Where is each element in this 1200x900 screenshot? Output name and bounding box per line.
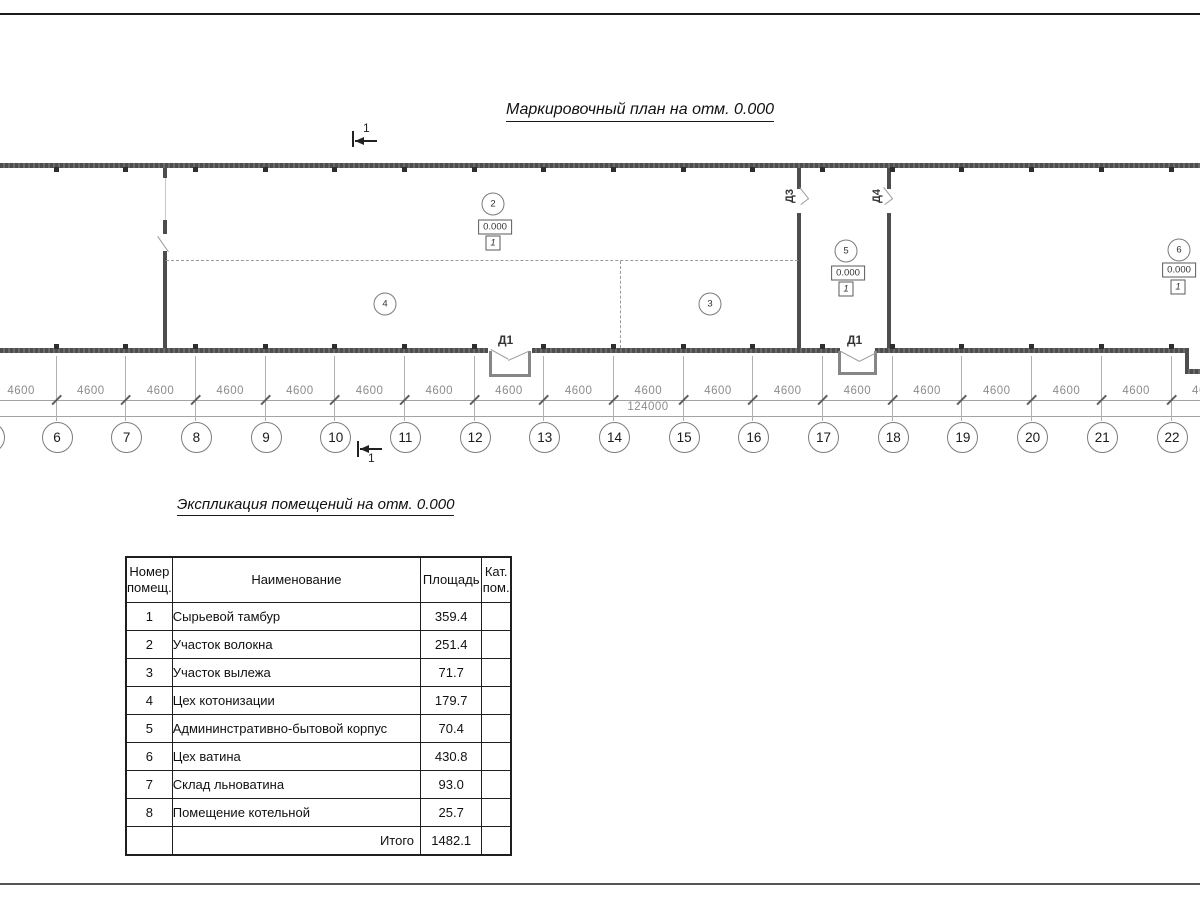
table-title: Экспликация помещений на отм. 0.000	[177, 496, 454, 516]
cell-room-category	[482, 799, 511, 827]
drawing-canvas: Маркировочный план на отм. 0.000 1 1 Д1 …	[0, 0, 1200, 900]
drawing-frame-top	[0, 13, 1200, 15]
cell-room-area: 93.0	[421, 771, 482, 799]
dashed-zone-line	[620, 261, 621, 348]
top-wall	[0, 163, 1200, 168]
bay-dimension-label: 4600	[286, 385, 314, 397]
cell-room-name: Помещение котельной	[172, 799, 420, 827]
room-number-bubble: 3	[699, 293, 722, 316]
partition-wall	[797, 168, 801, 189]
dimension-line	[0, 400, 1200, 401]
column-marker	[890, 344, 895, 349]
section-mark-bar	[357, 441, 359, 457]
room-number-bubble: 5	[835, 240, 858, 263]
door-opening-line	[165, 178, 166, 220]
cell-room-area: 70.4	[421, 715, 482, 743]
cell-empty	[126, 827, 172, 856]
cell-room-category	[482, 603, 511, 631]
column-marker	[1029, 344, 1034, 349]
axis-bubble: 18	[878, 422, 909, 453]
axis-extension-line	[195, 356, 196, 421]
bay-dimension-label: 4600	[356, 385, 384, 397]
cell-room-number: 2	[126, 631, 172, 659]
table-total-row: Итого1482.1	[126, 827, 511, 856]
bay-dimension-label: 4600	[565, 385, 593, 397]
axis-bubble: 7	[111, 422, 142, 453]
door-leader-line	[800, 198, 809, 205]
column-marker	[123, 344, 128, 349]
total-value: 1482.1	[421, 827, 482, 856]
axis-extension-line	[683, 356, 684, 421]
axis-bubble: 15	[669, 422, 700, 453]
partition-wall	[163, 251, 167, 348]
column-marker	[541, 344, 546, 349]
table-row: 8Помещение котельной25.7	[126, 799, 511, 827]
table-row: 6Цех ватина430.8	[126, 743, 511, 771]
elevation-mark: 0.000	[1162, 263, 1196, 278]
column-marker	[681, 167, 686, 172]
cell-room-name: Цех ватина	[172, 743, 420, 771]
axis-extension-line	[404, 356, 405, 421]
column-marker	[820, 344, 825, 349]
column-marker	[332, 344, 337, 349]
total-dimension-label: 124000	[622, 401, 673, 413]
column-marker	[332, 167, 337, 172]
column-marker	[820, 167, 825, 172]
right-step-wall	[1185, 369, 1200, 374]
axis-extension-line	[1101, 356, 1102, 421]
axis-bubble: 19	[947, 422, 978, 453]
bottom-wall-segment	[0, 348, 488, 353]
column-marker	[750, 167, 755, 172]
floor-type-mark: 1	[1171, 280, 1186, 295]
column-marker	[611, 167, 616, 172]
section-arrow-icon	[355, 137, 364, 145]
elevation-mark: 0.000	[478, 220, 512, 235]
cell-empty	[482, 827, 511, 856]
section-mark-label: 1	[368, 451, 375, 465]
column-marker	[123, 167, 128, 172]
bay-dimension-label: 4600	[425, 385, 453, 397]
elevation-mark: 0.000	[831, 266, 865, 281]
bay-dimension-label: 4600	[1053, 385, 1081, 397]
bay-dimension-label: 4600	[495, 385, 523, 397]
column-marker	[1099, 344, 1104, 349]
bay-dimension-label: 4600	[1122, 385, 1150, 397]
axis-bubble: 14	[599, 422, 630, 453]
axis-bubble: 8	[181, 422, 212, 453]
column-header-num: Номер помещ.	[126, 557, 172, 603]
drawing-frame-bottom	[0, 883, 1200, 885]
room-number-bubble: 4	[374, 293, 397, 316]
door-leader-line	[884, 198, 893, 205]
cell-room-number: 1	[126, 603, 172, 631]
axis-extension-line	[822, 356, 823, 421]
cell-room-category	[482, 743, 511, 771]
room-number-bubble: 6	[1168, 239, 1191, 262]
door-label-d3: Д3	[784, 182, 796, 210]
bay-dimension-label: 4600	[77, 385, 105, 397]
cell-room-category	[482, 771, 511, 799]
column-marker	[1099, 167, 1104, 172]
cell-room-area: 251.4	[421, 631, 482, 659]
section-mark-bar	[352, 131, 354, 147]
axis-bubble: 9	[251, 422, 282, 453]
axis-extension-line	[892, 356, 893, 421]
table-row: 3Участок вылежа71.7	[126, 659, 511, 687]
axis-bubble: 11	[390, 422, 421, 453]
axis-bubble: 21	[1087, 422, 1118, 453]
dashed-zone-line	[166, 260, 798, 261]
column-marker	[263, 344, 268, 349]
bay-dimension-label: 4600	[844, 385, 872, 397]
axis-extension-line	[56, 356, 57, 421]
column-marker	[890, 167, 895, 172]
axis-extension-line	[613, 356, 614, 421]
cell-room-name: Админинстративно-бытовой корпус	[172, 715, 420, 743]
column-marker	[54, 344, 59, 349]
column-marker	[750, 344, 755, 349]
cell-room-number: 3	[126, 659, 172, 687]
table-row: 7Склад льноватина93.0	[126, 771, 511, 799]
plan-title: Маркировочный план на отм. 0.000	[506, 101, 774, 122]
axis-extension-line	[1031, 356, 1032, 421]
column-marker	[193, 167, 198, 172]
table-row: 1Сырьевой тамбур359.4	[126, 603, 511, 631]
partition-wall	[887, 213, 891, 348]
cell-room-number: 4	[126, 687, 172, 715]
room-explication-table: Номер помещ. Наименование Площадь Кат. п…	[125, 556, 512, 856]
column-header-name: Наименование	[172, 557, 420, 603]
cell-room-name: Цех котонизации	[172, 687, 420, 715]
axis-bubble: 12	[460, 422, 491, 453]
cell-room-number: 6	[126, 743, 172, 771]
column-marker	[54, 167, 59, 172]
bay-dimension-label: 4600	[635, 385, 663, 397]
column-marker	[402, 344, 407, 349]
floor-type-mark: 1	[486, 236, 501, 251]
axis-bubble: 6	[42, 422, 73, 453]
bottom-wall-segment	[532, 348, 840, 353]
cell-room-area: 430.8	[421, 743, 482, 771]
axis-bubble: 17	[808, 422, 839, 453]
table-row: 4Цех котонизации179.7	[126, 687, 511, 715]
column-marker	[1169, 344, 1174, 349]
section-mark-label: 1	[363, 121, 370, 135]
cell-room-category	[482, 715, 511, 743]
axis-bubble: 20	[1017, 422, 1048, 453]
table-row: 5Админинстративно-бытовой корпус70.4	[126, 715, 511, 743]
column-marker	[959, 344, 964, 349]
column-marker	[472, 167, 477, 172]
axis-extension-line	[334, 356, 335, 421]
bay-dimension-label: 4600	[1192, 385, 1200, 397]
axis-extension-line	[961, 356, 962, 421]
axis-extension-line	[752, 356, 753, 421]
cell-room-number: 5	[126, 715, 172, 743]
room-table-body: 1Сырьевой тамбур359.42Участок волокна251…	[126, 603, 511, 856]
column-marker	[193, 344, 198, 349]
axis-bubble: 10	[320, 422, 351, 453]
cell-room-area: 359.4	[421, 603, 482, 631]
column-marker	[681, 344, 686, 349]
cell-room-name: Участок волокна	[172, 631, 420, 659]
column-marker	[1029, 167, 1034, 172]
cell-room-category	[482, 631, 511, 659]
column-marker	[263, 167, 268, 172]
dimension-line-total	[0, 416, 1200, 417]
floor-type-mark: 1	[839, 282, 854, 297]
door-leaf-line	[157, 236, 169, 252]
cell-room-name: Склад льноватина	[172, 771, 420, 799]
column-header-area: Площадь	[421, 557, 482, 603]
cell-room-name: Участок вылежа	[172, 659, 420, 687]
cell-room-area: 25.7	[421, 799, 482, 827]
column-marker	[402, 167, 407, 172]
total-label: Итого	[172, 827, 420, 856]
axis-extension-line	[543, 356, 544, 421]
cell-room-name: Сырьевой тамбур	[172, 603, 420, 631]
axis-extension-line	[1171, 356, 1172, 421]
column-header-cat: Кат. пом.	[482, 557, 511, 603]
cell-room-area: 71.7	[421, 659, 482, 687]
cell-room-category	[482, 687, 511, 715]
door-label-d4: Д4	[871, 182, 883, 210]
vestibule-outline	[489, 351, 531, 377]
room-number-bubble: 2	[482, 193, 505, 216]
axis-bubble-partial	[0, 422, 5, 453]
axis-extension-line	[265, 356, 266, 421]
bay-dimension-label: 4600	[7, 385, 35, 397]
door-label-d1: Д1	[847, 333, 862, 347]
axis-bubble: 13	[529, 422, 560, 453]
column-marker	[1169, 167, 1174, 172]
door-label-d1: Д1	[498, 333, 513, 347]
bay-dimension-label: 4600	[147, 385, 175, 397]
partition-wall	[797, 213, 801, 348]
axis-bubble: 16	[738, 422, 769, 453]
partition-wall	[163, 220, 167, 234]
bay-dimension-label: 4600	[216, 385, 244, 397]
axis-bubble: 22	[1157, 422, 1188, 453]
cell-room-area: 179.7	[421, 687, 482, 715]
cell-room-number: 8	[126, 799, 172, 827]
column-marker	[472, 344, 477, 349]
column-marker	[541, 167, 546, 172]
cell-room-category	[482, 659, 511, 687]
column-marker	[611, 344, 616, 349]
bay-dimension-label: 4600	[774, 385, 802, 397]
table-header-row: Номер помещ. Наименование Площадь Кат. п…	[126, 557, 511, 603]
partition-wall	[163, 168, 167, 178]
table-row: 2Участок волокна251.4	[126, 631, 511, 659]
bay-dimension-label: 4600	[913, 385, 941, 397]
column-marker	[959, 167, 964, 172]
bay-dimension-label: 4600	[704, 385, 732, 397]
bay-dimension-label: 4600	[983, 385, 1011, 397]
cell-room-number: 7	[126, 771, 172, 799]
axis-extension-line	[125, 356, 126, 421]
axis-extension-line	[474, 356, 475, 421]
